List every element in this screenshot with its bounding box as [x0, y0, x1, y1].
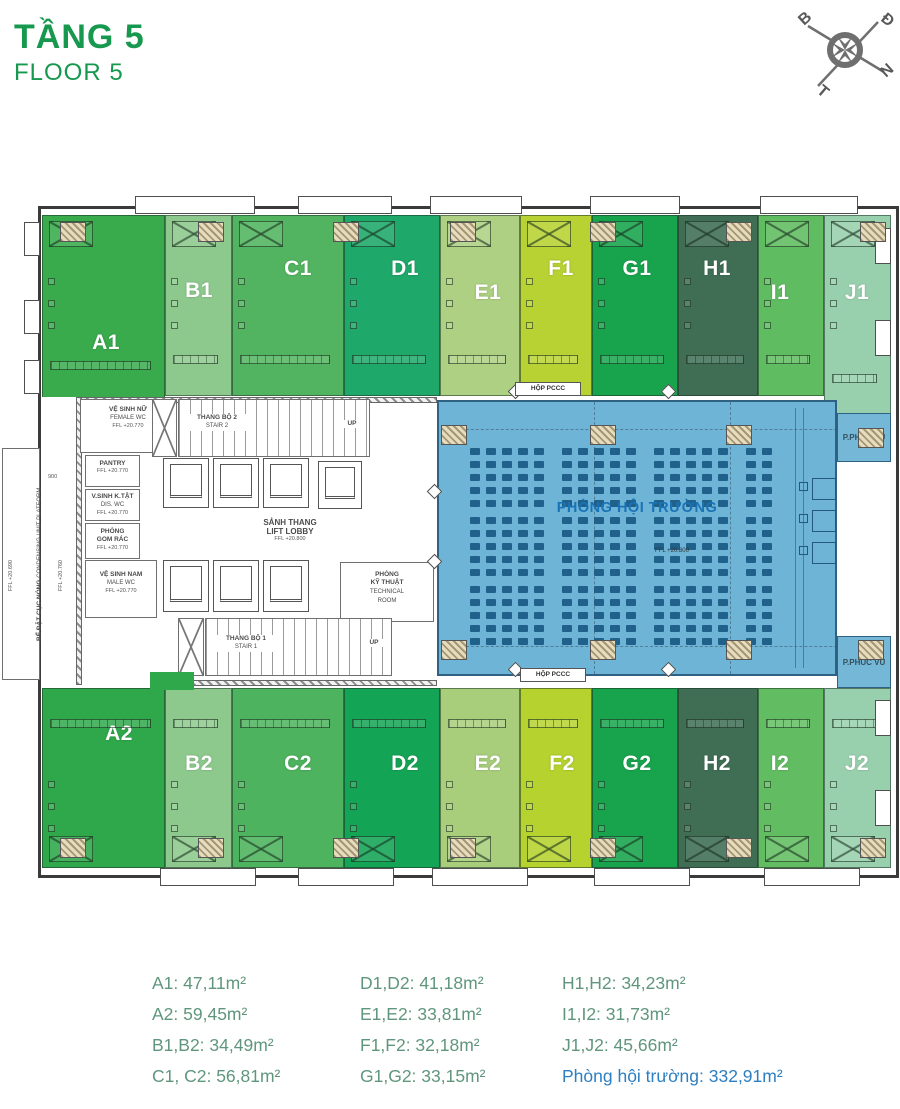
hall-seat	[610, 625, 620, 632]
furniture-kitchen	[832, 719, 877, 728]
balcony	[298, 868, 394, 886]
column-marker	[441, 425, 467, 445]
hall-seat	[718, 612, 728, 619]
column-marker	[333, 222, 359, 242]
hall-seat	[470, 487, 480, 494]
hall-seat	[518, 638, 528, 645]
column-marker	[726, 222, 752, 242]
legend-item: A1: 47,11m²	[152, 972, 280, 1003]
legend-item: J1,J2: 45,66m²	[562, 1034, 783, 1065]
furniture-chair	[446, 781, 453, 788]
hall-seat	[702, 448, 712, 455]
hall-seat	[762, 500, 772, 507]
hall-seat	[654, 461, 664, 468]
furniture-chair	[830, 781, 837, 788]
hall-seat	[486, 461, 496, 468]
furniture-chair	[830, 300, 837, 307]
hall-seat	[594, 625, 604, 632]
unit-label: J1	[845, 281, 869, 305]
room-garbage: PHÒNG GOM RÁC FFL +20.770	[85, 523, 140, 559]
hall-seat	[534, 461, 544, 468]
furniture-chair	[598, 300, 605, 307]
condensing-label: BỂ ĐẶT CỤC NÓNG CONDENSING UNIT PLATFORM	[36, 450, 58, 678]
unit-H1: H1	[678, 215, 758, 396]
hall-seat	[670, 461, 680, 468]
furniture-chair	[526, 803, 533, 810]
balcony	[875, 320, 891, 356]
hall-seat	[502, 599, 512, 606]
unit-I1: I1	[758, 215, 824, 396]
hall-seat	[486, 474, 496, 481]
hall-seat	[502, 500, 512, 507]
room-stair-1: THANG BỘ 1STAIR 1 UP	[205, 618, 392, 676]
hall-seat	[578, 530, 588, 537]
fire-cabinet-label-bottom: HỘP PCCC	[520, 668, 586, 682]
balcony	[760, 196, 858, 214]
legend-item: I1,I2: 31,73m²	[562, 1003, 783, 1034]
hall-seat	[762, 599, 772, 606]
hall-seat	[534, 556, 544, 563]
balcony	[135, 196, 255, 214]
hall-seat	[594, 474, 604, 481]
hall-seat	[670, 474, 680, 481]
hall-seat	[486, 569, 496, 576]
furniture-chair	[598, 825, 605, 832]
furniture-chair	[171, 803, 178, 810]
hall-seat	[502, 569, 512, 576]
room-male-wc: VỆ SINH NAM MALE WC FFL +20.770	[85, 560, 157, 618]
hall-seat	[610, 487, 620, 494]
hall-seat	[534, 530, 544, 537]
hall-seat	[762, 556, 772, 563]
hall-seat	[610, 448, 620, 455]
column-marker	[726, 425, 752, 445]
elevator	[213, 458, 259, 508]
column-marker	[860, 222, 886, 242]
hall-seat	[470, 638, 480, 645]
hall-seat	[578, 461, 588, 468]
hall-seat	[762, 586, 772, 593]
title-block: TẦNG 5 FLOOR 5	[14, 18, 145, 87]
hall-seat	[594, 517, 604, 524]
hall-seat	[518, 474, 528, 481]
hall-seat	[762, 543, 772, 550]
stage-desk	[812, 542, 836, 564]
elevator	[163, 560, 209, 612]
hall-seat	[702, 530, 712, 537]
hall-seat	[626, 517, 636, 524]
column-marker	[450, 222, 476, 242]
hall-seat	[702, 586, 712, 593]
furniture-chair	[350, 300, 357, 307]
hall-seat	[594, 448, 604, 455]
elevator	[263, 458, 309, 508]
furniture-chair	[171, 781, 178, 788]
column-marker	[198, 838, 224, 858]
hall-seat	[562, 487, 572, 494]
hall-seat	[610, 569, 620, 576]
furniture-chair	[526, 300, 533, 307]
hall-seat	[654, 625, 664, 632]
unit-C1: C1	[232, 215, 344, 396]
balcony	[24, 222, 40, 256]
column-marker	[60, 222, 86, 242]
furniture-chair	[684, 300, 691, 307]
furniture-chair	[350, 322, 357, 329]
stage-desk	[812, 478, 836, 500]
hall-seat	[578, 638, 588, 645]
hall-seat	[746, 599, 756, 606]
hall-seat	[686, 474, 696, 481]
hall-seat	[626, 638, 636, 645]
unit-label: E1	[475, 281, 502, 305]
elevator-car	[325, 467, 355, 499]
furniture-kitchen	[50, 719, 151, 728]
axis-line	[441, 646, 887, 647]
column-marker	[860, 838, 886, 858]
hall-seat	[534, 474, 544, 481]
hall-seat	[746, 556, 756, 563]
furniture-chair	[238, 781, 245, 788]
axis-line	[441, 429, 887, 430]
balcony	[875, 700, 891, 736]
elevator	[213, 560, 259, 612]
furniture-chair	[238, 825, 245, 832]
hall-seat	[670, 569, 680, 576]
hall-seat	[470, 586, 480, 593]
hall-seat	[626, 586, 636, 593]
hall-seat	[518, 556, 528, 563]
furniture-kitchen	[600, 719, 664, 728]
hall-seat	[562, 530, 572, 537]
unit-label: I1	[771, 281, 790, 305]
column-marker	[590, 222, 616, 242]
hall-seat	[518, 612, 528, 619]
hall-seat	[746, 625, 756, 632]
hall-seat	[562, 612, 572, 619]
hall-seat	[594, 599, 604, 606]
furniture-kitchen	[528, 719, 578, 728]
hall-seat	[626, 612, 636, 619]
legend-column-1: A1: 47,11m² A2: 59,45m² B1,B2: 34,49m² C…	[152, 972, 280, 1096]
furniture-chair	[238, 803, 245, 810]
hall-seat	[626, 474, 636, 481]
legend-item: C1, C2: 56,81m²	[152, 1065, 280, 1096]
column-marker	[333, 838, 359, 858]
furniture-chair	[171, 300, 178, 307]
hall-seat	[502, 612, 512, 619]
furniture-chair	[830, 803, 837, 810]
legend-item: A2: 59,45m²	[152, 1003, 280, 1034]
hall-seat	[626, 599, 636, 606]
hall-seat	[626, 569, 636, 576]
hall-seat	[746, 517, 756, 524]
furniture-bed	[765, 836, 809, 862]
unit-label: E2	[475, 752, 502, 776]
hall-seat	[594, 612, 604, 619]
balcony	[875, 790, 891, 826]
hall-seat	[486, 599, 496, 606]
hall-seat	[746, 530, 756, 537]
unit-label: G2	[622, 752, 651, 776]
furniture-chair	[350, 781, 357, 788]
hall-seat	[502, 474, 512, 481]
hall-seat	[534, 543, 544, 550]
unit-F1: F1	[520, 215, 592, 396]
hall-seat	[654, 599, 664, 606]
hall-seat	[718, 569, 728, 576]
hall-seat	[486, 543, 496, 550]
furniture-kitchen	[528, 355, 578, 364]
furniture-bed	[527, 836, 571, 862]
furniture-chair	[48, 300, 55, 307]
unit-E1: E1	[440, 215, 520, 396]
furniture-chair	[764, 278, 771, 285]
furniture-kitchen	[766, 719, 810, 728]
balcony	[432, 868, 528, 886]
furniture-chair	[238, 322, 245, 329]
hall-seat	[762, 474, 772, 481]
legend-item: F1,F2: 32,18m²	[360, 1034, 485, 1065]
hall-seat	[702, 612, 712, 619]
hall-seat	[762, 638, 772, 645]
legend-item: H1,H2: 34,23m²	[562, 972, 783, 1003]
stage-line	[803, 408, 804, 668]
unit-label: F2	[549, 752, 575, 776]
auditorium-hall	[437, 400, 837, 676]
ffl-label: FFL +20.690	[8, 560, 14, 591]
stage-desk	[812, 510, 836, 532]
hall-seat	[534, 569, 544, 576]
hall-seat	[594, 569, 604, 576]
furniture-kitchen	[686, 719, 744, 728]
hall-seat	[610, 543, 620, 550]
furniture-chair	[238, 300, 245, 307]
hall-seat	[534, 448, 544, 455]
hall-seat	[594, 543, 604, 550]
hall-seat	[718, 517, 728, 524]
hall-seat	[686, 448, 696, 455]
unit-label: B2	[185, 752, 213, 776]
hall-seat	[670, 638, 680, 645]
furniture-kitchen	[240, 719, 330, 728]
hall-seat	[562, 638, 572, 645]
furniture-chair	[446, 825, 453, 832]
svg-text:N: N	[877, 61, 897, 81]
lift-lobby-label: SẢNH THANG LIFT LOBBY FFL +20.800	[240, 518, 340, 542]
unit-C2: C2	[232, 688, 344, 868]
unit-label: I2	[771, 752, 790, 776]
hall-seat	[470, 612, 480, 619]
hall-seat	[562, 517, 572, 524]
hall-seat	[486, 556, 496, 563]
furniture-bed	[239, 836, 283, 862]
hall-seat	[746, 474, 756, 481]
hall-seat	[518, 599, 528, 606]
hall-seat	[762, 461, 772, 468]
hall-seat	[470, 448, 480, 455]
hall-seat	[654, 530, 664, 537]
furniture-chair	[446, 278, 453, 285]
furniture-chair	[830, 322, 837, 329]
hall-seat	[502, 461, 512, 468]
unit-label: F1	[548, 257, 574, 281]
hall-seat	[702, 543, 712, 550]
furniture-chair	[48, 803, 55, 810]
hall-seat	[718, 530, 728, 537]
elevator	[163, 458, 209, 508]
room-pantry: PANTRY FFL +20.770	[85, 455, 140, 487]
legend-column-3: H1,H2: 34,23m² I1,I2: 31,73m² J1,J2: 45,…	[562, 972, 783, 1096]
hall-seat	[578, 625, 588, 632]
hall-seat	[562, 586, 572, 593]
hall-seat	[746, 569, 756, 576]
furniture-chair	[171, 322, 178, 329]
hall-seat	[702, 556, 712, 563]
hall-seat	[594, 556, 604, 563]
balcony	[160, 868, 256, 886]
hall-seat	[518, 569, 528, 576]
hall-seat	[718, 500, 728, 507]
hall-seat	[578, 612, 588, 619]
hall-seat	[502, 448, 512, 455]
furniture-kitchen	[600, 355, 664, 364]
hall-seat	[686, 625, 696, 632]
hall-seat	[518, 517, 528, 524]
unit-label: D2	[391, 752, 419, 776]
hall-seat	[610, 530, 620, 537]
room-technical: PHÒNG KỸ THUẬT TECHNICAL ROOM	[340, 562, 434, 622]
hall-seat	[686, 517, 696, 524]
hall-seat	[670, 556, 680, 563]
furniture-kitchen	[50, 361, 151, 370]
hall-seat	[470, 461, 480, 468]
column-marker	[590, 838, 616, 858]
balcony	[590, 196, 680, 214]
unit-A2-corridor	[150, 672, 194, 690]
compass-icon: B Đ N T	[790, 4, 898, 104]
hall-seat	[578, 599, 588, 606]
furniture-chair	[684, 803, 691, 810]
hall-seat	[718, 625, 728, 632]
hall-seat	[486, 448, 496, 455]
hall-seat	[594, 530, 604, 537]
hall-seat	[702, 461, 712, 468]
balcony	[298, 196, 392, 214]
hall-seat	[534, 625, 544, 632]
furniture-chair	[684, 322, 691, 329]
hall-seat	[470, 500, 480, 507]
hall-seat	[762, 487, 772, 494]
hall-seat	[610, 599, 620, 606]
hall-seat	[762, 612, 772, 619]
furniture-chair	[764, 781, 771, 788]
hall-seat	[562, 599, 572, 606]
furniture-chair	[526, 278, 533, 285]
hall-seat	[626, 487, 636, 494]
fire-cabinet-label-top: HỘP PCCC	[515, 382, 581, 396]
furniture-chair	[171, 278, 178, 285]
hall-seat	[626, 556, 636, 563]
hall-seat	[594, 461, 604, 468]
hall-seat	[702, 487, 712, 494]
hall-seat	[686, 556, 696, 563]
hall-seat	[486, 638, 496, 645]
hall-seat	[610, 612, 620, 619]
furniture-chair	[350, 278, 357, 285]
furniture-kitchen	[173, 719, 218, 728]
floor-plan: TẦNG 5 FLOOR 5 B Đ N T A1 B1 C1 D1 E1 F1…	[0, 0, 900, 1109]
hall-seat	[610, 556, 620, 563]
hall-seat	[702, 625, 712, 632]
hall-seat	[470, 517, 480, 524]
unit-B1: B1	[165, 215, 232, 396]
legend-item: E1,E2: 33,81m²	[360, 1003, 485, 1034]
hall-seat	[534, 599, 544, 606]
furniture-chair	[764, 803, 771, 810]
hall-seat	[686, 461, 696, 468]
hall-seat	[746, 543, 756, 550]
column-marker	[198, 222, 224, 242]
column-marker	[441, 640, 467, 660]
unit-label: A1	[92, 331, 120, 355]
hall-seat	[654, 556, 664, 563]
hall-seat	[718, 474, 728, 481]
svg-text:B: B	[795, 9, 815, 29]
furniture-chair	[526, 825, 533, 832]
hall-seat	[762, 448, 772, 455]
column-marker	[726, 838, 752, 858]
legend-item: G1,G2: 33,15m²	[360, 1065, 485, 1096]
legend-item: D1,D2: 41,18m²	[360, 972, 485, 1003]
balcony	[764, 868, 860, 886]
shaft	[152, 399, 177, 457]
furniture-chair	[446, 322, 453, 329]
hall-seat	[470, 599, 480, 606]
unit-D1: D1	[344, 215, 440, 396]
furniture-chair	[598, 278, 605, 285]
hall-seat	[502, 530, 512, 537]
furniture-chair	[446, 300, 453, 307]
hall-seat	[686, 530, 696, 537]
hall-seat	[626, 543, 636, 550]
hall-seat	[502, 625, 512, 632]
unit-label: G1	[622, 257, 651, 281]
hall-seat	[654, 586, 664, 593]
hall-seat	[762, 517, 772, 524]
hall-seat	[670, 487, 680, 494]
furniture-kitchen	[448, 719, 506, 728]
furniture-chair	[598, 781, 605, 788]
hall-seat	[486, 612, 496, 619]
stage-chair	[799, 482, 808, 491]
unit-A1: A1	[42, 215, 165, 402]
hall-seat	[534, 487, 544, 494]
unit-label: C1	[284, 257, 312, 281]
hall-seat	[654, 638, 664, 645]
hall-seat	[702, 638, 712, 645]
hall-seat	[470, 569, 480, 576]
furniture-chair	[764, 825, 771, 832]
furniture-kitchen	[173, 355, 218, 364]
hall-seat	[670, 448, 680, 455]
unit-I2: I2	[758, 688, 824, 868]
hall-seat	[670, 625, 680, 632]
hall-seat	[562, 556, 572, 563]
hall-seat	[702, 517, 712, 524]
elevator-car	[270, 566, 302, 602]
room-disabled-wc: V.SINH K.TẬT DIS. WC FFL +20.770	[85, 489, 140, 521]
